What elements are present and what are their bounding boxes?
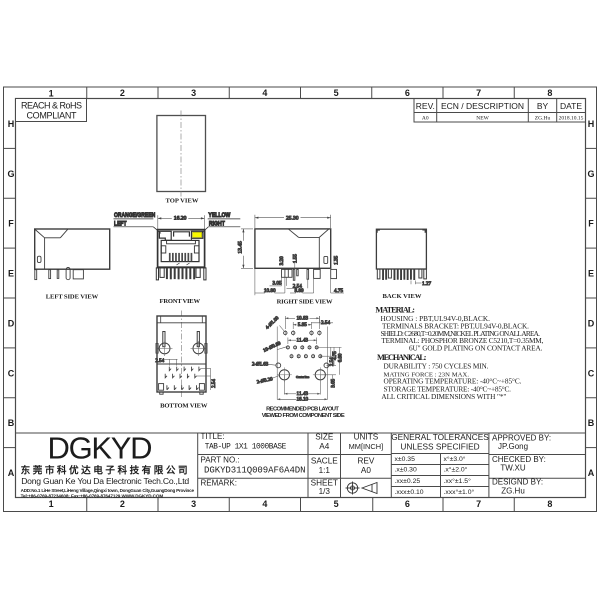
svg-text:G: G (7, 169, 14, 179)
svg-text:FRONT VIEW: FRONT VIEW (160, 298, 201, 305)
svg-text:3: 3 (191, 499, 196, 509)
svg-text:4: 4 (262, 88, 267, 98)
svg-text:3.05: 3.05 (332, 378, 337, 387)
svg-text:3.05: 3.05 (272, 281, 281, 287)
svg-text:A4: A4 (319, 442, 329, 451)
svg-text:ZG.Hu: ZG.Hu (501, 487, 525, 496)
svg-text:6U" GOLD PLATING ON CONTACT AR: 6U" GOLD PLATING ON CONTACT AREA. (409, 343, 543, 352)
svg-text:BY: BY (537, 101, 549, 111)
svg-text:2.54: 2.54 (212, 379, 217, 388)
svg-text:.xxx±0.10: .xxx±0.10 (395, 489, 424, 496)
svg-text:PART NO.:: PART NO.: (201, 456, 240, 465)
svg-text:LEFT SIDE VIEW: LEFT SIDE VIEW (46, 294, 99, 301)
svg-text:2018.10.15: 2018.10.15 (559, 116, 584, 122)
svg-text:TAB-UP 1X1 1000BASE: TAB-UP 1X1 1000BASE (205, 444, 287, 452)
svg-text:H: H (8, 119, 15, 129)
svg-text:.xx°±1.5°: .xx°±1.5° (444, 477, 472, 485)
svg-text:DATE: DATE (560, 101, 582, 111)
svg-text:1: 1 (49, 89, 54, 99)
svg-text:Center line: Center line (296, 375, 310, 379)
svg-text:RIGHT SIDE VIEW: RIGHT SIDE VIEW (277, 299, 333, 306)
svg-text:TW.XU: TW.XU (500, 464, 526, 473)
svg-text:C: C (588, 368, 595, 378)
svg-text:2-Ø1.63: 2-Ø1.63 (252, 362, 269, 367)
svg-text:MM[INCH]: MM[INCH] (349, 442, 384, 451)
svg-text:DURABILITY : 750 CYCLES MIN.: DURABILITY : 750 CYCLES MIN. (384, 361, 489, 370)
svg-text:2.54: 2.54 (155, 359, 164, 364)
svg-text:A0: A0 (422, 116, 429, 122)
svg-text:REMARK:: REMARK: (201, 479, 237, 488)
svg-text:SHEET: SHEET (311, 479, 338, 488)
svg-text:x±0.35: x±0.35 (395, 456, 416, 463)
svg-text:1: 1 (49, 499, 54, 509)
svg-text:SACLE: SACLE (311, 457, 338, 466)
svg-text:RECOMMENDED PCB LAYOUT: RECOMMENDED PCB LAYOUT (266, 407, 339, 413)
svg-text:ZG.Hu: ZG.Hu (535, 116, 551, 122)
svg-text:11.43: 11.43 (297, 337, 309, 343)
svg-text:4.75: 4.75 (334, 288, 343, 294)
svg-text:REACH & RoHS: REACH & RoHS (21, 101, 82, 111)
svg-text:2.54: 2.54 (321, 320, 330, 326)
svg-text:25.30: 25.30 (286, 215, 299, 221)
svg-text:DGKYD311Q009AF6A4DN: DGKYD311Q009AF6A4DN (204, 466, 305, 476)
svg-text:1:1: 1:1 (319, 466, 331, 475)
svg-text:DESIGND BY:: DESIGND BY: (492, 478, 543, 487)
svg-text:ADD:No.1 LiHe Street,LiHeng Vi: ADD:No.1 LiHe Street,LiHeng Village,Qing… (21, 488, 195, 493)
svg-text:DGKYD: DGKYD (48, 431, 153, 466)
svg-text:.x°±2.0°: .x°±2.0° (444, 466, 468, 474)
svg-text:UNITS: UNITS (354, 433, 379, 442)
svg-text:2: 2 (120, 499, 125, 509)
svg-text:ECN / DESCRIPTION: ECN / DESCRIPTION (441, 101, 524, 111)
svg-text:3.20: 3.20 (279, 256, 285, 265)
svg-text:REV.: REV. (416, 101, 435, 111)
svg-text:BACK VIEW: BACK VIEW (383, 293, 422, 300)
svg-text:7: 7 (476, 88, 481, 98)
svg-text:REV: REV (357, 457, 374, 466)
svg-text:8: 8 (547, 499, 552, 509)
svg-text:3: 3 (191, 88, 196, 98)
svg-text:A: A (8, 468, 15, 478)
svg-text:D: D (588, 319, 595, 329)
svg-text:ALL CRITICAL DIMENSIONS WITH ": ALL CRITICAL DIMENSIONS WITH "*" (381, 392, 506, 401)
svg-text:16.20: 16.20 (174, 216, 187, 222)
svg-text:COMPLIANT: COMPLIANT (27, 111, 78, 121)
svg-text:8: 8 (547, 88, 552, 98)
svg-text:F: F (588, 219, 594, 229)
svg-text:.x±0.30: .x±0.30 (395, 467, 417, 474)
svg-text:5.85: 5.85 (298, 322, 307, 328)
svg-text:TITLE:: TITLE: (201, 432, 225, 441)
svg-text:10.80: 10.80 (264, 288, 276, 294)
svg-text:6.80: 6.80 (339, 353, 344, 362)
svg-text:6: 6 (405, 88, 410, 98)
svg-text:B: B (588, 418, 595, 428)
svg-text:E: E (8, 269, 14, 279)
svg-text:4: 4 (262, 499, 267, 509)
svg-text:SIZE: SIZE (315, 433, 334, 442)
svg-text:4.75: 4.75 (333, 351, 338, 360)
svg-text:1/3: 1/3 (319, 487, 331, 496)
svg-text:Tel:+86-0769-87234608; Fax:+86: Tel:+86-0769-87234608; Fax:+86-0769-8764… (21, 493, 164, 498)
svg-text:E: E (588, 269, 594, 279)
svg-text:8.89: 8.89 (294, 288, 303, 294)
svg-text:D: D (8, 319, 15, 329)
svg-text:10.83: 10.83 (296, 316, 308, 322)
svg-text:1.55: 1.55 (292, 254, 298, 263)
svg-text:H: H (588, 119, 595, 129)
svg-text:TOP VIEW: TOP VIEW (166, 197, 199, 204)
svg-text:1.35: 1.35 (333, 255, 339, 264)
svg-text:C: C (8, 368, 15, 378)
svg-text:.xxx°±1.0°: .xxx°±1.0° (444, 488, 475, 496)
svg-text:13.45: 13.45 (238, 241, 244, 254)
svg-text:F: F (8, 219, 14, 229)
svg-text:2: 2 (120, 88, 125, 98)
svg-text:YELLOW: YELLOW (208, 213, 230, 220)
svg-text:7: 7 (476, 499, 481, 509)
svg-text:B: B (8, 418, 15, 428)
svg-text:x°±3.0°: x°±3.0° (444, 455, 466, 463)
svg-text:UNLESS SPECIFIED: UNLESS SPECIFIED (400, 441, 479, 451)
svg-text:A0: A0 (361, 466, 371, 475)
svg-text:Dong Guan Ke You Da Electronic: Dong Guan Ke You Da Electronic Tech.Co.,… (21, 476, 189, 486)
svg-text:GENERAL TOLERANCES: GENERAL TOLERANCES (391, 432, 489, 442)
svg-text:JP.Gong: JP.Gong (498, 442, 528, 451)
svg-text:G: G (587, 169, 594, 179)
svg-text:NEW: NEW (476, 116, 489, 122)
svg-text:5: 5 (334, 499, 339, 509)
svg-text:1.27: 1.27 (422, 281, 431, 287)
svg-text:ORANGE/GREEN: ORANGE/GREEN (114, 213, 155, 220)
svg-text:6: 6 (405, 499, 410, 509)
svg-text:A: A (588, 468, 595, 478)
svg-text:16.10: 16.10 (296, 397, 308, 403)
svg-text:.xx±0.25: .xx±0.25 (395, 478, 421, 485)
svg-text:5: 5 (334, 88, 339, 98)
svg-text:VIEWED FROM COMPONENT SIDE: VIEWED FROM COMPONENT SIDE (262, 413, 345, 419)
svg-text:BOTTOM VIEW: BOTTOM VIEW (160, 402, 208, 409)
